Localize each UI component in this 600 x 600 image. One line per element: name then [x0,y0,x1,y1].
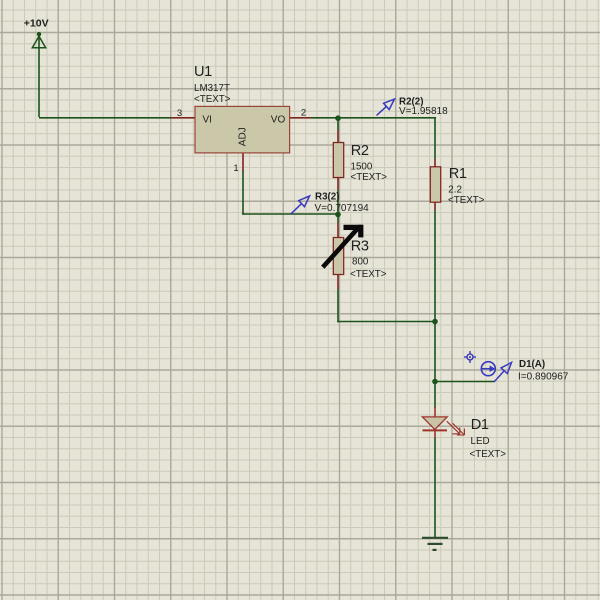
svg-text:2.2: 2.2 [448,184,462,195]
svg-text:VO: VO [271,114,286,125]
svg-text:ADJ: ADJ [238,127,249,146]
svg-text:1: 1 [233,163,238,174]
svg-text:3: 3 [177,108,182,119]
svg-text:U1: U1 [194,64,212,80]
svg-text:2: 2 [301,107,306,118]
svg-text:LED: LED [471,436,490,447]
svg-text:V=0.707194: V=0.707194 [315,203,370,214]
svg-text:1500: 1500 [351,161,373,172]
svg-text:D1(A): D1(A) [519,359,545,370]
svg-text:R2: R2 [351,143,369,159]
svg-text:<TEXT>: <TEXT> [448,195,485,206]
svg-text:D1: D1 [471,417,489,433]
svg-text:R1: R1 [449,166,467,182]
svg-text:R3(2): R3(2) [315,191,340,202]
svg-text:<TEXT>: <TEXT> [470,449,507,460]
svg-text:+10V: +10V [24,18,49,30]
svg-text:LM317T: LM317T [194,83,230,94]
svg-text:<TEXT>: <TEXT> [351,172,388,183]
svg-text:I=0.890967: I=0.890967 [518,371,569,382]
svg-text:<TEXT>: <TEXT> [350,269,387,280]
svg-text:VI: VI [203,114,212,125]
svg-text:<TEXT>: <TEXT> [194,94,231,105]
svg-text:V=1.95818: V=1.95818 [399,106,448,117]
svg-text:R3: R3 [351,238,369,254]
svg-text:800: 800 [352,257,369,268]
